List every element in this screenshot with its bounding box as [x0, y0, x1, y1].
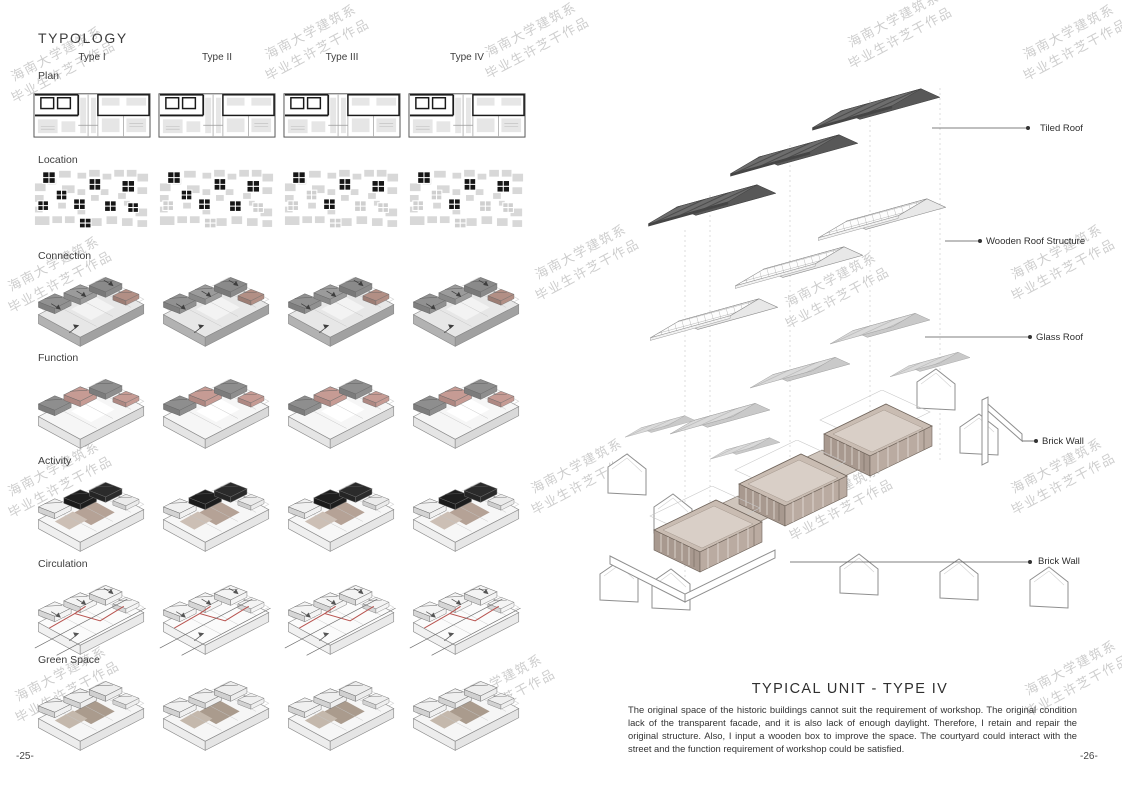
location-map-type-i: [33, 166, 151, 238]
watermark: 海南大学建筑系毕业生许芝干作品: [262, 0, 373, 81]
green-space-row: [33, 666, 526, 753]
function-axon-type-iii: [283, 364, 401, 451]
function-axon-type-i: [33, 364, 151, 451]
plan-diagram-type-ii: [158, 82, 276, 139]
location-map-type-iii: [283, 166, 401, 238]
circulation-axon-type-ii: [158, 570, 276, 657]
location-map-type-ii: [158, 166, 276, 238]
function-row: [33, 364, 526, 451]
plan-diagram-type-i: [33, 82, 151, 139]
circulation-row: [33, 570, 526, 657]
plan-diagram-type-iii: [283, 82, 401, 139]
activity-row: [33, 467, 526, 554]
row-label-plan: Plan: [38, 70, 59, 82]
row-label-location: Location: [38, 154, 78, 166]
connection-axon-type-iv: [408, 262, 526, 349]
connection-row: [33, 262, 526, 349]
callout-label-tiled-roof: Tiled Roof: [1040, 123, 1083, 134]
green-space-axon-type-i: [33, 666, 151, 753]
exploded-axonometric-diagram: [590, 60, 1122, 675]
page-title: TYPOLOGY: [38, 30, 128, 46]
column-header-type-ii: Type II: [158, 52, 276, 63]
building-mass: [650, 390, 932, 572]
activity-axon-type-iv: [408, 467, 526, 554]
circulation-axon-type-i: [33, 570, 151, 657]
column-header-type-iii: Type III: [283, 52, 401, 63]
column-header-type-iv: Type IV: [408, 52, 526, 63]
callout-dots: [978, 126, 1038, 564]
green-space-axon-type-iv: [408, 666, 526, 753]
circulation-axon-type-iv: [408, 570, 526, 657]
page-number-left: -25-: [16, 751, 34, 762]
watermark: 海南大学建筑系毕业生许芝干作品: [482, 0, 593, 79]
row-label-function: Function: [38, 352, 78, 364]
green-space-axon-type-iii: [283, 666, 401, 753]
callout-label-brick-wall-lower: Brick Wall: [1038, 556, 1080, 567]
detail-title: TYPICAL UNIT - TYPE IV: [630, 681, 1070, 697]
row-label-connection: Connection: [38, 250, 91, 262]
callout-label-glass-roof: Glass Roof: [1036, 332, 1083, 343]
function-axon-type-iv: [408, 364, 526, 451]
detail-description: The original space of the historic build…: [628, 703, 1077, 756]
green-space-axon-type-ii: [158, 666, 276, 753]
column-header-type-i: Type I: [33, 52, 151, 63]
watermark: 海南大学建筑系毕业生许芝干作品: [845, 0, 956, 69]
activity-axon-type-iii: [283, 467, 401, 554]
function-axon-type-ii: [158, 364, 276, 451]
plan-diagram-type-iv: [408, 82, 526, 139]
activity-axon-type-i: [33, 467, 151, 554]
location-row: [33, 166, 526, 238]
circulation-axon-type-iii: [283, 570, 401, 657]
location-map-type-iv: [408, 166, 526, 238]
tiled-roof-layer: [648, 89, 940, 227]
connection-axon-type-iii: [283, 262, 401, 349]
callout-label-brick-wall-upper: Brick Wall: [1042, 436, 1084, 447]
row-label-activity: Activity: [38, 455, 71, 467]
callout-label-wooden-roof-structure: Wooden Roof Structure: [986, 236, 1085, 247]
activity-axon-type-ii: [158, 467, 276, 554]
page-number-right: -26-: [1080, 751, 1098, 762]
connection-axon-type-ii: [158, 262, 276, 349]
row-label-circulation: Circulation: [38, 558, 88, 570]
plan-row: [33, 82, 526, 139]
portfolio-spread: 海南大学建筑系毕业生许芝干作品 海南大学建筑系毕业生许芝干作品 海南大学建筑系毕…: [0, 0, 1122, 793]
connection-axon-type-i: [33, 262, 151, 349]
